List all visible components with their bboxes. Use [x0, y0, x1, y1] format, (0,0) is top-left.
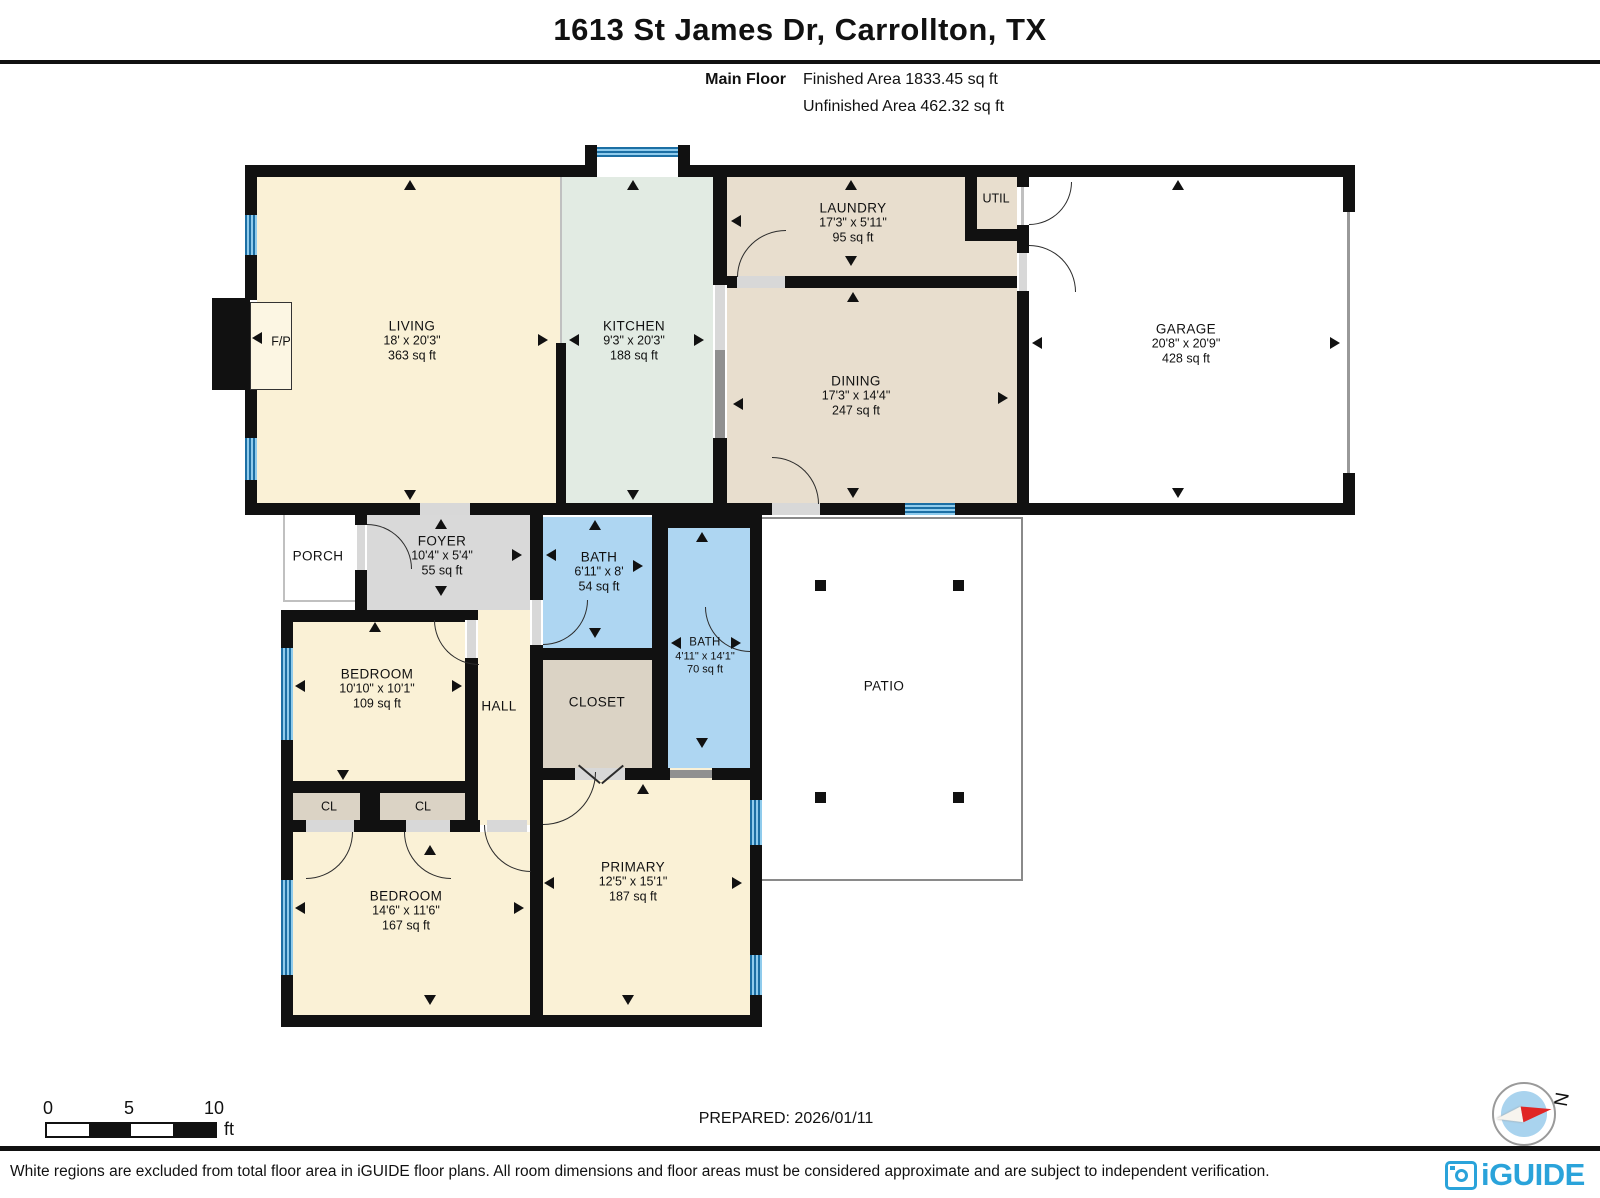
wall: [470, 503, 772, 515]
arrow-icon: [633, 560, 643, 572]
wall: [965, 177, 977, 229]
door-arc: [1029, 245, 1076, 292]
wall: [750, 845, 762, 955]
opening: [1019, 253, 1027, 291]
room-label-bedroom-small: BEDROOM 10'10" x 10'1" 109 sq ft: [339, 667, 415, 712]
arrow-icon: [1032, 337, 1042, 349]
arrow-icon: [538, 334, 548, 346]
porch-edge: [283, 600, 357, 602]
wall: [530, 645, 543, 768]
patio-outline: [757, 517, 1023, 881]
scale-tick-0: 0: [43, 1098, 53, 1119]
wall: [281, 740, 293, 880]
arrow-icon: [512, 549, 522, 561]
arrow-icon: [694, 334, 704, 346]
arrow-icon: [569, 334, 579, 346]
room-label-util: UTIL: [982, 192, 1009, 207]
room-label-porch: PORCH: [293, 549, 344, 564]
arrow-icon: [514, 902, 524, 914]
arrow-icon: [589, 628, 601, 638]
wall: [678, 165, 1017, 177]
arrow-icon: [424, 845, 436, 855]
arrow-icon: [627, 490, 639, 500]
pass-through: [715, 350, 725, 438]
scale-tick-5: 5: [124, 1098, 134, 1119]
arrow-icon: [404, 490, 416, 500]
arrow-icon: [546, 549, 556, 561]
wall: [965, 229, 1017, 241]
wall: [245, 165, 590, 177]
arrow-icon: [589, 520, 601, 530]
arrow-icon: [733, 398, 743, 410]
arrow-icon: [627, 180, 639, 190]
brand-wordmark: iGUIDE: [1481, 1157, 1585, 1193]
wall: [652, 515, 668, 648]
wall: [713, 177, 727, 285]
wall: [652, 648, 668, 768]
room-label-bath-second: BATH 4'11" x 14'1" 70 sq ft: [675, 636, 735, 677]
wall: [678, 145, 690, 177]
window: [245, 215, 257, 255]
arrow-icon: [732, 877, 742, 889]
wall: [245, 390, 257, 438]
arrow-icon: [1172, 180, 1184, 190]
area-division-line: [560, 177, 562, 343]
wall: [355, 515, 367, 525]
arrow-icon: [252, 332, 262, 344]
opening: [420, 503, 470, 515]
wall: [1343, 177, 1355, 212]
arrow-icon: [424, 995, 436, 1005]
kitchen-bay: [597, 157, 678, 177]
scale-unit: ft: [224, 1119, 234, 1140]
unfinished-area: Unfinished Area 462.32 sq ft: [803, 98, 1004, 116]
room-label-kitchen: KITCHEN 9'3" x 20'3" 188 sq ft: [603, 319, 665, 364]
arrow-icon: [369, 622, 381, 632]
wall: [450, 820, 480, 832]
patio-post: [953, 580, 964, 591]
prepared-date: PREPARED: 2026/01/11: [699, 1110, 874, 1128]
patio-post: [953, 792, 964, 803]
opening: [670, 770, 712, 778]
wall: [727, 276, 737, 288]
opening: [772, 503, 820, 515]
floor-label: Main Floor: [640, 71, 786, 89]
wall: [281, 781, 465, 793]
room-label-patio: PATIO: [864, 679, 905, 694]
arrow-icon: [637, 784, 649, 794]
arrow-icon: [435, 519, 447, 529]
arrow-icon: [847, 488, 859, 498]
wall: [465, 658, 478, 820]
wall: [281, 610, 293, 648]
garage-door-line: [1347, 212, 1350, 473]
wall: [281, 1015, 762, 1027]
patio-post: [815, 792, 826, 803]
arrow-icon: [731, 215, 741, 227]
wall: [354, 820, 406, 832]
room-label-garage: GARAGE 20'8" x 20'9" 428 sq ft: [1152, 322, 1221, 367]
room-label-primary: PRIMARY 12'5" x 15'1" 187 sq ft: [599, 860, 668, 905]
arrow-icon: [845, 180, 857, 190]
opening: [715, 285, 725, 350]
patio-post: [815, 580, 826, 591]
arrow-icon: [1172, 488, 1184, 498]
window: [281, 880, 293, 975]
wall: [360, 793, 380, 820]
arrow-icon: [295, 680, 305, 692]
wall: [712, 768, 750, 780]
camera-icon: [1445, 1161, 1477, 1190]
arrow-icon: [622, 995, 634, 1005]
fireplace-label: F/P: [271, 335, 290, 350]
footer-disclaimer: White regions are excluded from total fl…: [10, 1163, 1270, 1181]
scale-bar: [45, 1122, 217, 1138]
wall: [955, 503, 1017, 515]
floorplan-page: 1613 St James Dr, Carrollton, TX Main Fl…: [0, 0, 1600, 1198]
arrow-icon: [1330, 337, 1340, 349]
arrow-icon: [998, 392, 1008, 404]
wall: [530, 515, 543, 600]
header-divider: [0, 60, 1600, 64]
page-title: 1613 St James Dr, Carrollton, TX: [0, 12, 1600, 48]
wall: [785, 276, 1017, 288]
room-label-cl-left: CL: [321, 800, 337, 815]
porch-edge: [283, 515, 285, 602]
opening: [737, 276, 785, 288]
wall: [1017, 225, 1029, 253]
opening: [357, 525, 365, 570]
window: [750, 800, 762, 845]
window: [750, 955, 762, 995]
wall: [625, 768, 670, 780]
arrow-icon: [337, 770, 349, 780]
wall: [245, 177, 257, 215]
arrow-icon: [452, 680, 462, 692]
compass-icon: [1492, 1082, 1556, 1146]
window: [245, 438, 257, 480]
room-label-dining: DINING 17'3" x 14'4" 247 sq ft: [822, 374, 891, 419]
wall: [245, 255, 257, 300]
room-label-hall: HALL: [481, 699, 516, 714]
opening: [406, 820, 450, 832]
wall: [281, 820, 306, 832]
room-hall: [478, 610, 530, 825]
opening: [306, 820, 354, 832]
wall: [1017, 177, 1029, 187]
wall: [1017, 165, 1355, 177]
iguide-logo: iGUIDE: [1445, 1157, 1585, 1193]
wall: [585, 145, 597, 177]
wall: [820, 503, 905, 515]
wall: [556, 343, 566, 503]
arrow-icon: [847, 292, 859, 302]
arrow-icon: [295, 902, 305, 914]
arrow-icon: [696, 532, 708, 542]
wall: [1017, 291, 1029, 503]
wall: [713, 438, 727, 503]
door-arc: [1029, 182, 1072, 225]
room-label-laundry: LAUNDRY 17'3" x 5'11" 95 sq ft: [819, 201, 887, 246]
wall: [1343, 473, 1355, 503]
arrow-icon: [404, 180, 416, 190]
wall: [530, 768, 543, 1027]
scale-tick-10: 10: [204, 1098, 224, 1119]
room-label-bath-main: BATH 6'11" x 8' 54 sq ft: [574, 550, 623, 595]
room-label-living: LIVING 18' x 20'3" 363 sq ft: [383, 319, 440, 364]
wall: [668, 515, 750, 528]
wall: [465, 610, 478, 620]
room-closet: [543, 660, 652, 768]
window: [597, 147, 678, 157]
arrow-icon: [544, 877, 554, 889]
window: [281, 648, 293, 740]
room-label-closet: CLOSET: [569, 695, 625, 710]
arrow-icon: [435, 586, 447, 596]
room-label-foyer: FOYER 10'4" x 5'4" 55 sq ft: [411, 534, 473, 579]
footer-divider: [0, 1146, 1600, 1151]
wall: [355, 570, 367, 610]
arrow-icon: [845, 256, 857, 266]
finished-area: Finished Area 1833.45 sq ft: [803, 71, 998, 89]
wall: [750, 515, 762, 800]
arrow-icon: [696, 738, 708, 748]
wall: [245, 503, 420, 515]
room-label-bedroom-large: BEDROOM 14'6" x 11'6" 167 sq ft: [370, 889, 443, 934]
fireplace-block: [212, 298, 250, 390]
util-door-line: [1021, 187, 1024, 225]
window: [905, 503, 955, 515]
room-label-cl-right: CL: [415, 800, 431, 815]
wall: [543, 648, 652, 660]
opening: [532, 600, 541, 645]
wall: [1017, 503, 1355, 515]
